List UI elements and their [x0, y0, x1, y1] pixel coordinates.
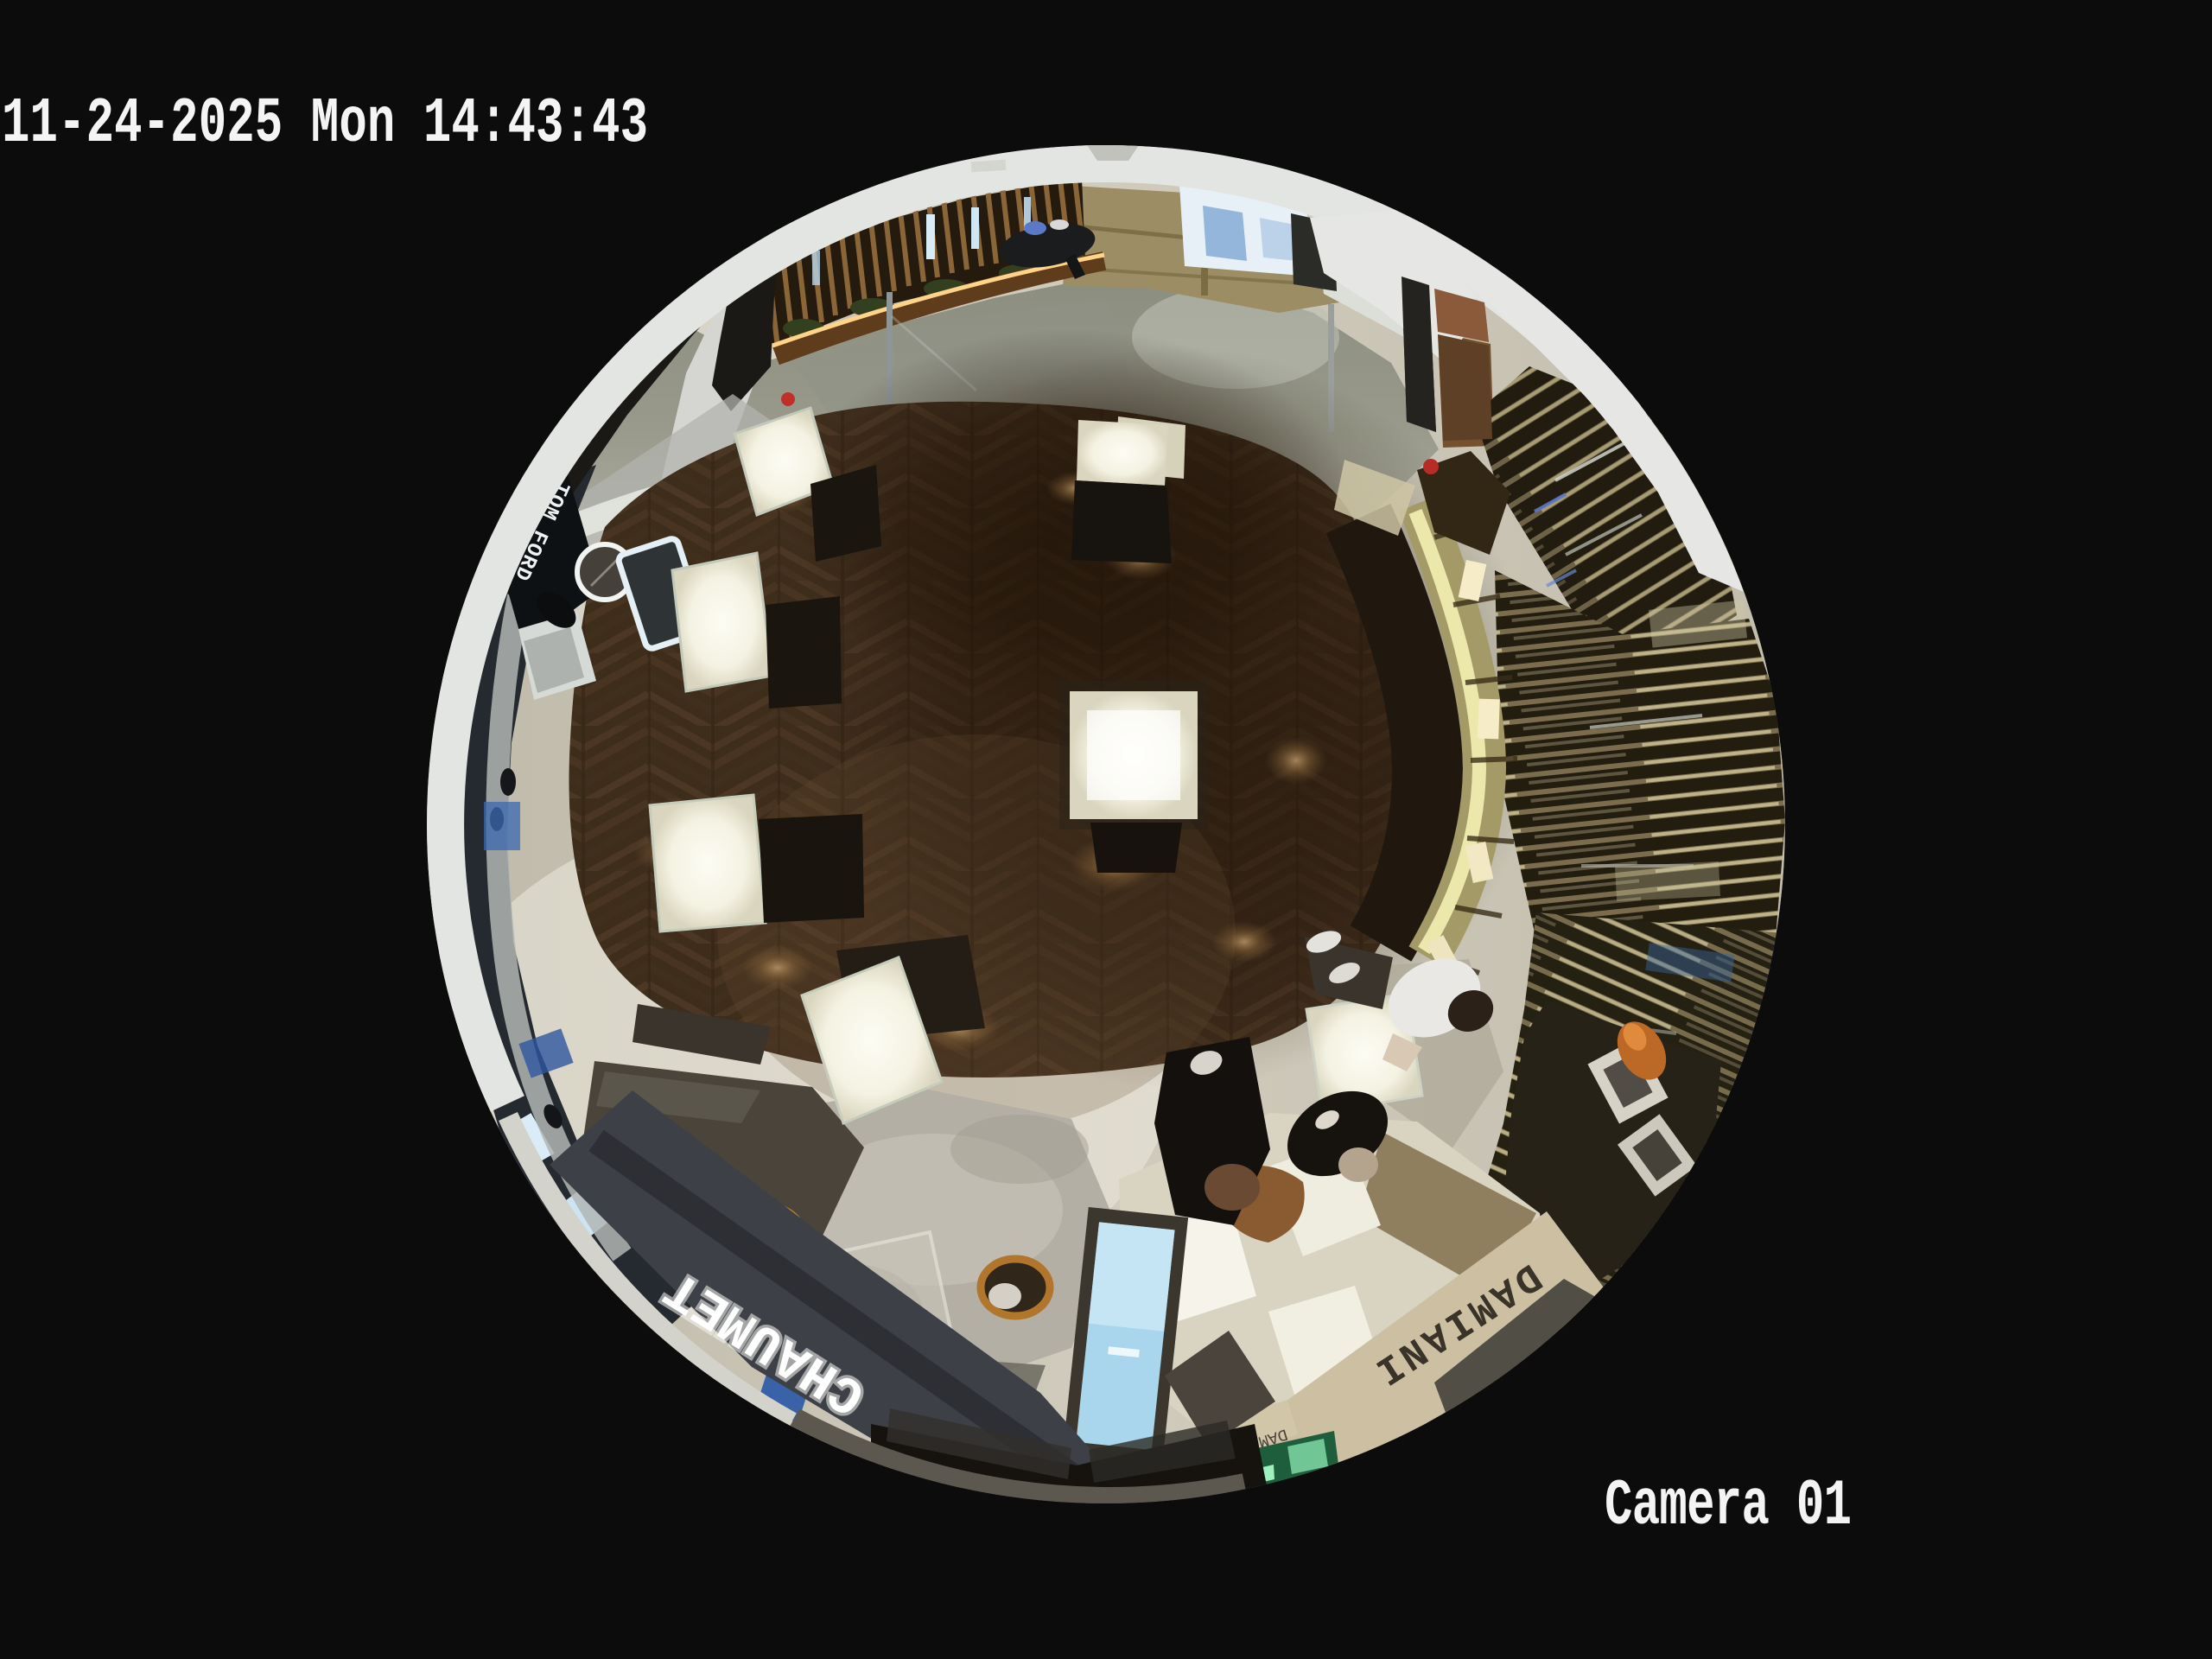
svg-text:11-24-2025 Mon 14:43:43: 11-24-2025 Mon 14:43:43 — [2, 88, 648, 160]
svg-text:Camera 01: Camera 01 — [1605, 1469, 1852, 1543]
